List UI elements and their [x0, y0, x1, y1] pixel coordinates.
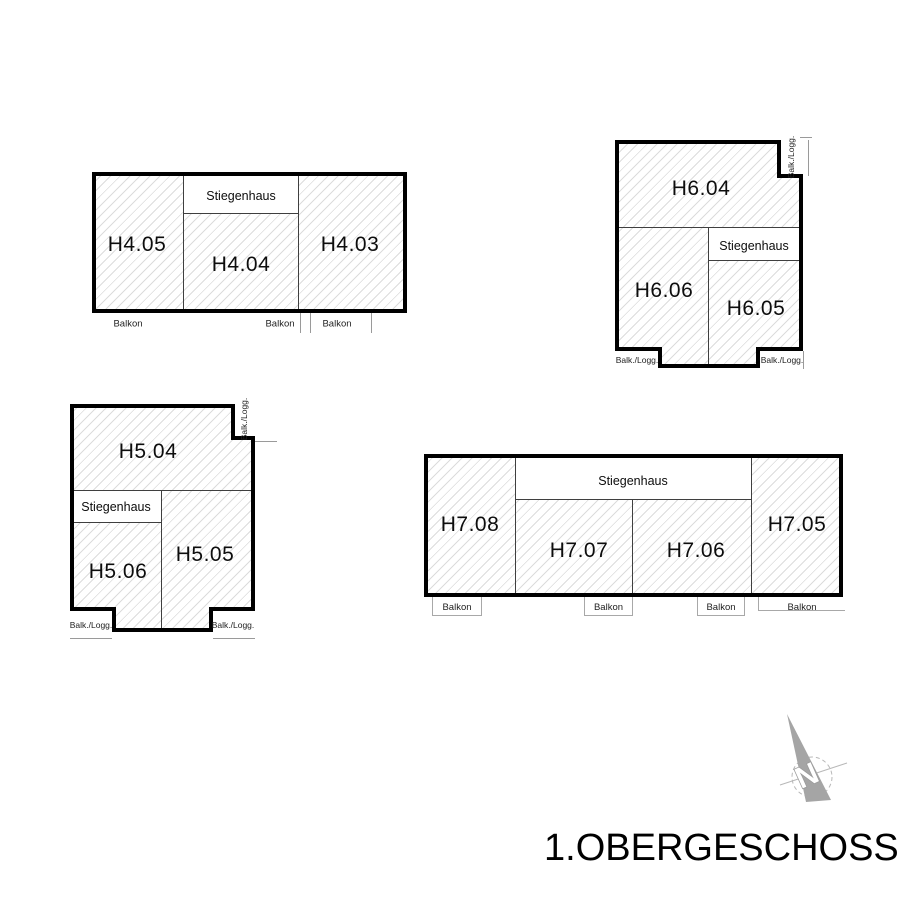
- unit-label-h7-07: H7.07: [550, 539, 609, 563]
- balcony-outline-h7-2: Balkon: [584, 597, 633, 616]
- unit-label-h5-06: H5.06: [89, 560, 148, 584]
- unit-label-h4-03: H4.03: [321, 233, 380, 257]
- loggia-outline-line: [70, 638, 112, 639]
- loggia-outline-line: [808, 140, 809, 176]
- loggia-label-h6-right: Balk./Logg.: [761, 355, 804, 365]
- loggia-protrusion-h6: [658, 347, 760, 368]
- balcony-outline-h7-3: Balkon: [697, 597, 745, 616]
- loggia-label-h5-left: Balk./Logg.: [70, 620, 113, 630]
- partition-line: [632, 500, 633, 593]
- balcony-label-h7-3: Balkon: [706, 602, 735, 613]
- unit-label-h5-04: H5.04: [119, 440, 178, 464]
- stairwell-label-h4: Stiegenhaus: [206, 189, 276, 203]
- loggia-label-h6-left: Balk./Logg.: [616, 355, 659, 365]
- loggia-outline-line: [800, 137, 812, 138]
- unit-label-h4-04: H4.04: [212, 253, 271, 277]
- loggia-label-h5-top: Balk./Logg.: [239, 398, 249, 441]
- stairwell-label-h6: Stiegenhaus: [719, 239, 789, 253]
- unit-label-h7-08: H7.08: [441, 513, 500, 537]
- balcony-divider-tick: [371, 313, 372, 333]
- balcony-label-h4-2: Balkon: [265, 319, 294, 330]
- partition-line: [708, 347, 709, 364]
- partition-line: [161, 607, 162, 628]
- unit-label-h6-06: H6.06: [635, 279, 694, 303]
- balcony-label-h4-1: Balkon: [113, 319, 142, 330]
- balcony-divider-tick: [310, 313, 311, 333]
- floor-plan-canvas: { "title": "1.OBERGESCHOSS", "north": { …: [0, 0, 900, 900]
- unit-label-h5-05: H5.05: [176, 543, 235, 567]
- balcony-outline-h7-4: Balkon: [758, 597, 845, 611]
- loggia-outline-line: [213, 638, 255, 639]
- balcony-label-h7-1: Balkon: [442, 602, 471, 613]
- balcony-label-h4-3: Balkon: [322, 319, 351, 330]
- loggia-label-h6-top: Balk./Logg.: [786, 136, 796, 179]
- unit-label-h7-05: H7.05: [768, 513, 827, 537]
- loggia-label-h5-right: Balk./Logg.: [212, 620, 255, 630]
- stairwell-label-h7: Stiegenhaus: [598, 474, 668, 488]
- unit-label-h7-06: H7.06: [667, 539, 726, 563]
- page-title: 1.OBERGESCHOSS: [544, 827, 899, 870]
- balcony-label-h7-4: Balkon: [787, 602, 816, 613]
- balcony-outline-h7-1: Balkon: [432, 597, 482, 616]
- unit-label-h6-04: H6.04: [672, 177, 731, 201]
- unit-label-h4-05: H4.05: [108, 233, 167, 257]
- balcony-divider-tick: [300, 313, 301, 333]
- balcony-label-h7-2: Balkon: [594, 602, 623, 613]
- unit-label-h6-05: H6.05: [727, 297, 786, 321]
- loggia-protrusion-h5: [112, 607, 213, 632]
- north-arrow: N: [750, 700, 860, 810]
- loggia-outline-line: [253, 441, 277, 442]
- stairwell-label-h5: Stiegenhaus: [81, 500, 151, 514]
